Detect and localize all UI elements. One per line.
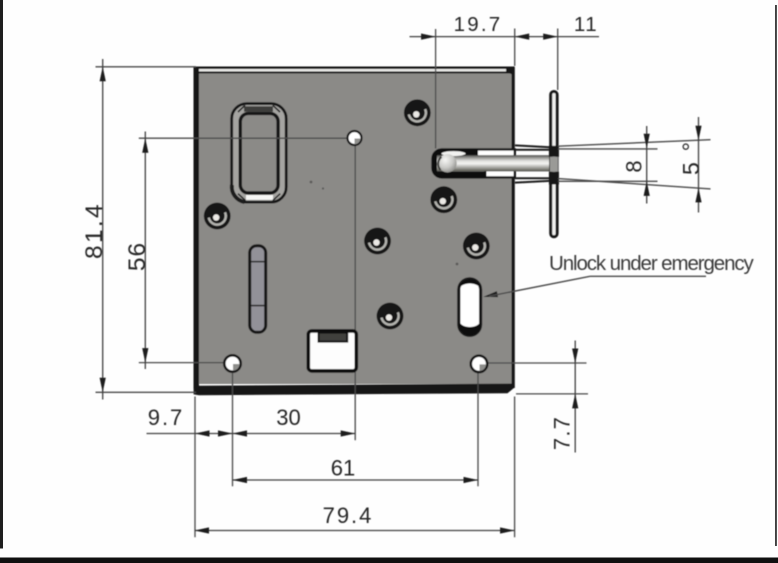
svg-text:5°: 5° — [678, 131, 704, 175]
svg-text:8: 8 — [621, 160, 646, 172]
svg-text:9.7: 9.7 — [148, 405, 185, 430]
svg-text:11: 11 — [574, 13, 598, 36]
svg-text:81.4: 81.4 — [81, 202, 108, 259]
svg-text:Unlock under emergency: Unlock under emergency — [549, 252, 755, 275]
svg-text:56: 56 — [124, 242, 151, 271]
svg-text:61: 61 — [331, 456, 355, 481]
svg-text:19.7: 19.7 — [454, 13, 503, 36]
svg-text:79.4: 79.4 — [323, 503, 374, 528]
svg-text:7.7: 7.7 — [549, 416, 574, 450]
svg-text:30: 30 — [276, 405, 300, 430]
